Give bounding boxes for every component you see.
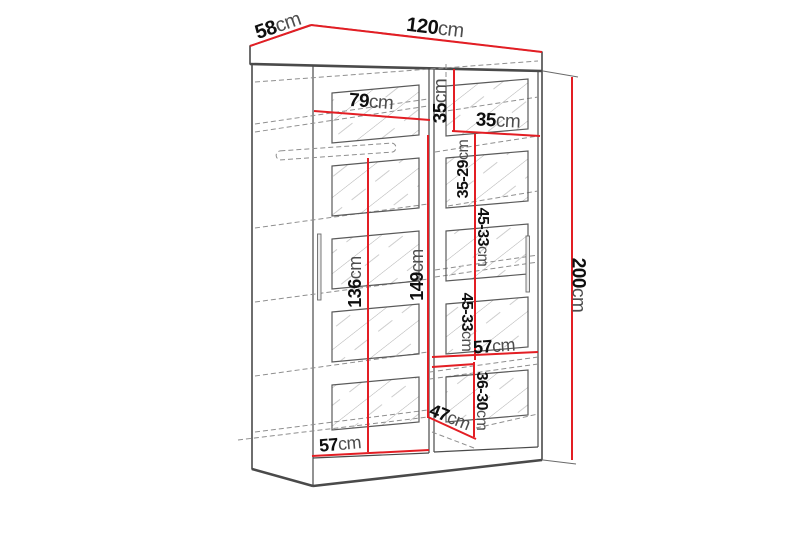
dim-left-section-width-label: 79cm: [348, 91, 394, 113]
dim-top-right-section-width-label: 35cm: [475, 110, 520, 131]
dim-bottom-right-shelf-spacing-label: 36-30cm: [473, 372, 489, 431]
diagram-canvas: 58cm 120cm 200cm 79cm 35cm 35cm 35-29cm …: [0, 0, 800, 533]
dim-left-interior-height-label: 149cm: [408, 249, 426, 301]
dim-top-shelf-height-label: 35cm: [432, 79, 451, 123]
dim-right-shelf-spacing-lower-label: 45-33cm: [458, 293, 474, 352]
dim-upper-right-shelf-spacing-label: 35-29cm: [456, 140, 472, 199]
dim-bottom-left-shelf-width-label: 57cm: [318, 433, 361, 455]
dim-hanging-space-height-label: 136cm: [346, 256, 364, 308]
door-handle-right: [526, 236, 530, 292]
dim-right-shelf-width-label: 57cm: [472, 336, 515, 357]
dim-height-label: 200cm: [569, 258, 588, 313]
door-handle-left: [318, 234, 322, 300]
wardrobe-diagram: [0, 0, 800, 533]
dim-right-shelf-spacing-upper-label: 45-33cm: [474, 208, 490, 267]
